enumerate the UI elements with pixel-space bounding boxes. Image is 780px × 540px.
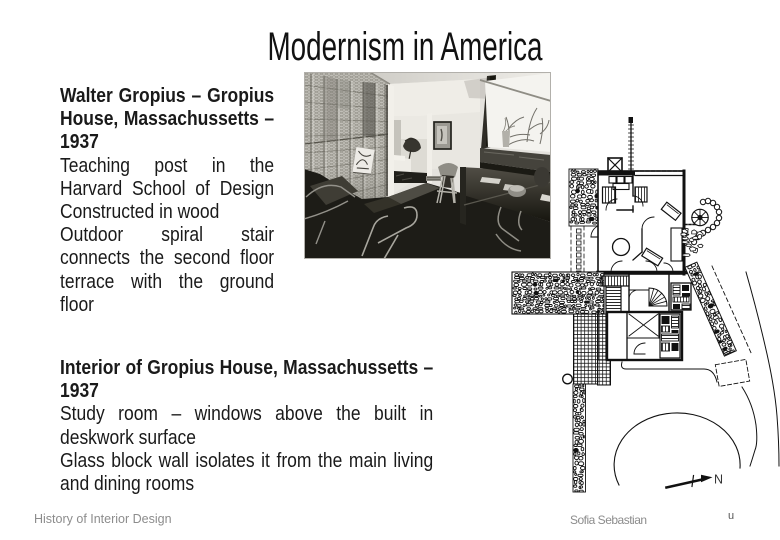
svg-text:N: N — [714, 473, 723, 487]
